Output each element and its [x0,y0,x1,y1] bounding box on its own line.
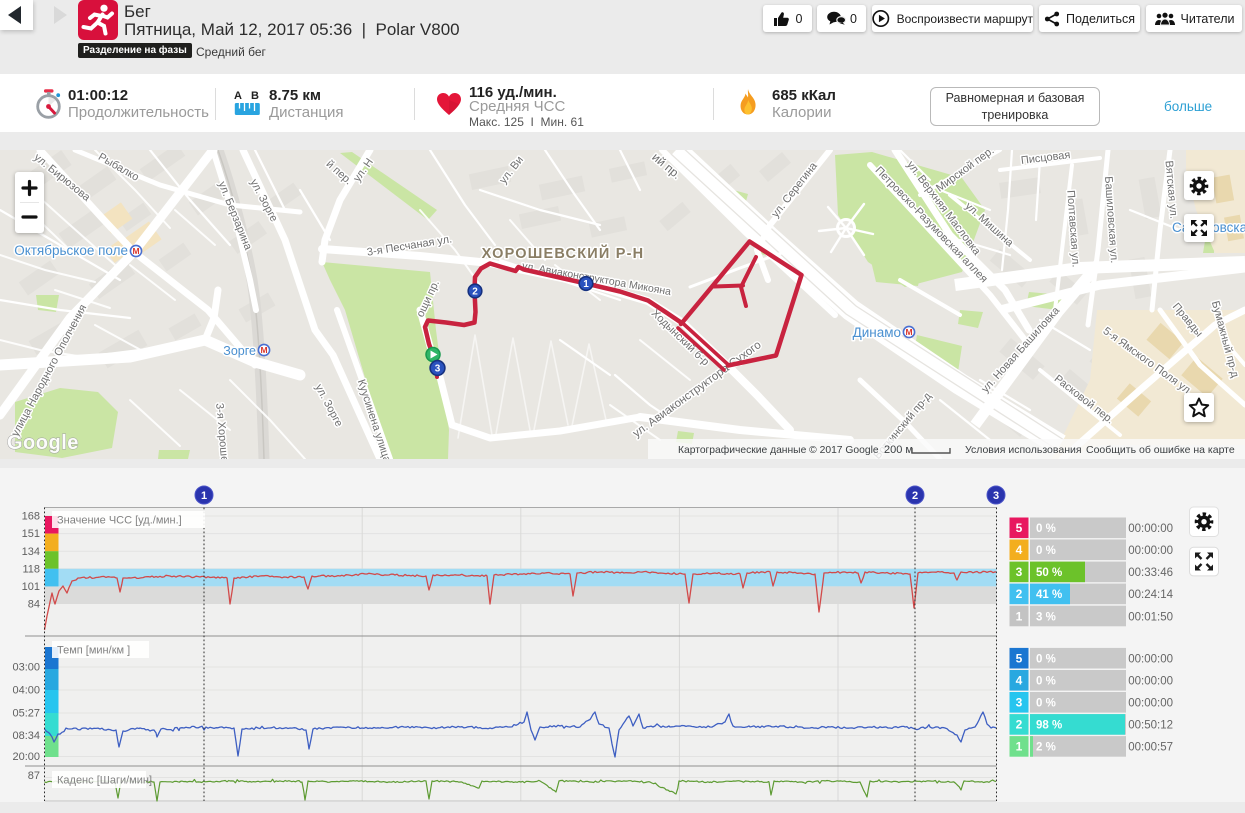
svg-text:00:00:00: 00:00:00 [1128,654,1173,666]
svg-text:2 %: 2 % [1036,742,1056,754]
svg-text:3: 3 [435,364,441,375]
svg-text:1: 1 [583,279,589,290]
svg-text:Каденс [Шаги/мин]: Каденс [Шаги/мин] [57,775,152,787]
svg-text:Картографические данные © 2017: Картографические данные © 2017 Google [678,444,879,456]
svg-text:4: 4 [1016,543,1023,557]
svg-text:1: 1 [1016,740,1023,754]
svg-text:0 %: 0 % [1036,676,1056,688]
svg-text:41 %: 41 % [1036,589,1062,601]
svg-text:М: М [260,345,267,355]
svg-text:118: 118 [22,563,40,575]
svg-text:0 %: 0 % [1036,545,1056,557]
svg-text:Условия использования: Условия использования [965,444,1082,456]
svg-text:Темп [мин/км ]: Темп [мин/км ] [57,645,130,657]
svg-text:1: 1 [201,490,207,502]
svg-text:В: В [251,90,259,102]
svg-text:00:00:00: 00:00:00 [1128,698,1173,710]
svg-text:Сообщить об ошибке на карте: Сообщить об ошибке на карте [1086,444,1235,456]
svg-text:3: 3 [993,490,999,502]
svg-text:134: 134 [22,546,40,558]
svg-text:3: 3 [1016,696,1023,710]
svg-text:Значение ЧСС [уд./мин.]: Значение ЧСС [уд./мин.] [57,515,182,527]
svg-text:84: 84 [28,599,40,611]
svg-text:04:00: 04:00 [12,685,40,697]
svg-text:168: 168 [22,511,40,523]
svg-text:03:00: 03:00 [12,662,40,674]
svg-text:А: А [234,90,242,102]
svg-text:Google: Google [7,432,79,454]
svg-text:00:00:00: 00:00:00 [1128,676,1173,688]
svg-text:2: 2 [1016,718,1023,732]
svg-text:Динамо: Динамо [853,325,901,340]
svg-text:87: 87 [28,770,40,782]
svg-text:М: М [132,246,139,256]
svg-text:5: 5 [1016,521,1023,535]
svg-text:00:00:00: 00:00:00 [1128,523,1173,535]
svg-text:101: 101 [22,581,40,593]
svg-text:00:00:57: 00:00:57 [1128,742,1173,754]
svg-text:2: 2 [1016,587,1023,601]
svg-text:0 %: 0 % [1036,523,1056,535]
svg-text:М: М [905,327,912,337]
svg-text:08:34: 08:34 [12,730,40,742]
svg-text:2: 2 [912,490,918,502]
svg-text:00:00:00: 00:00:00 [1128,545,1173,557]
svg-text:3 %: 3 % [1036,611,1056,623]
svg-text:ХОРОШЕВСКИЙ Р-Н: ХОРОШЕВСКИЙ Р-Н [482,244,645,262]
svg-text:00:01:50: 00:01:50 [1128,611,1173,623]
svg-text:2: 2 [472,287,478,298]
svg-text:3: 3 [1016,565,1023,579]
svg-text:00:33:46: 00:33:46 [1128,567,1173,579]
svg-text:4: 4 [1016,674,1023,688]
svg-text:0 %: 0 % [1036,654,1056,666]
svg-text:98 %: 98 % [1036,720,1062,732]
svg-text:50 %: 50 % [1036,567,1062,579]
svg-text:Зорге: Зорге [223,344,256,358]
svg-text:1: 1 [1016,609,1023,623]
svg-text:151: 151 [22,528,40,540]
svg-text:00:24:14: 00:24:14 [1128,589,1173,601]
svg-text:00:50:12: 00:50:12 [1128,720,1173,732]
svg-text:Октябрьское поле: Октябрьское поле [14,243,128,258]
svg-text:5: 5 [1016,652,1023,666]
svg-text:05:27: 05:27 [12,708,40,720]
svg-text:0 %: 0 % [1036,698,1056,710]
svg-text:200 м: 200 м [884,444,913,456]
svg-text:20:00: 20:00 [12,751,40,763]
